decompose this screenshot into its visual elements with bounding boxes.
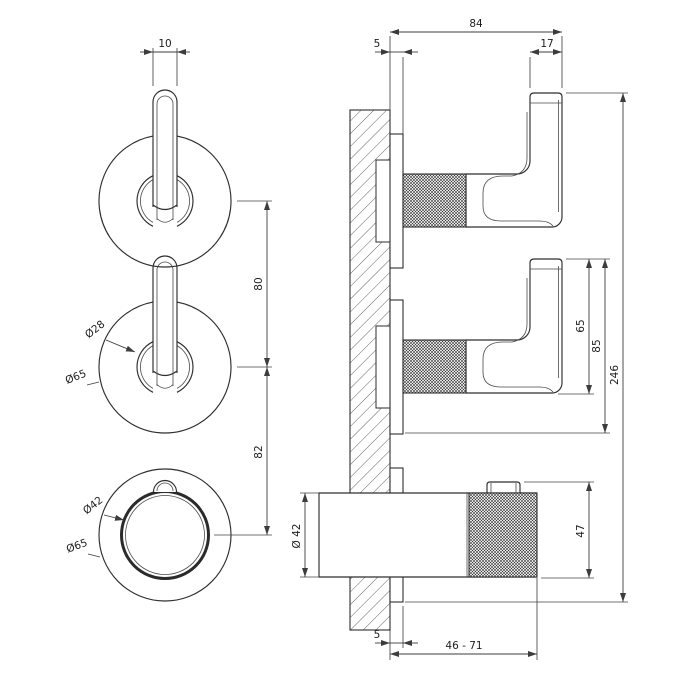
in-wall-valve-middle — [376, 326, 390, 408]
dim-text-o42-side: Ø 42 — [291, 524, 303, 549]
front-handle-middle — [99, 256, 231, 433]
dim-text-65: 65 — [575, 319, 587, 332]
side-lever-top — [403, 93, 562, 227]
dim-lever-width-front: 10 — [140, 38, 190, 86]
dim-installation-depth: 46 - 71 — [390, 578, 537, 660]
label-hub-diameter: Ø28 — [83, 318, 107, 341]
dim-lever-height: 65 — [558, 259, 610, 394]
dim-text-84: 84 — [469, 18, 483, 30]
label-knob-diameter: Ø42 — [81, 494, 105, 517]
dim-text-46-71: 46 - 71 — [445, 640, 482, 652]
in-wall-valve-top — [376, 160, 390, 242]
technical-drawing-page: 10 80 82 Ø28 Ø65 Ø42 Ø65 — [0, 0, 700, 700]
dim-text-80: 80 — [253, 277, 265, 290]
dim-text-5-top: 5 — [374, 38, 381, 50]
dim-text-10: 10 — [158, 38, 171, 50]
front-view: 10 80 82 Ø28 Ø65 Ø42 Ø65 — [64, 38, 272, 601]
mixer-technical-drawing: 10 80 82 Ø28 Ø65 Ø42 Ø65 — [0, 0, 700, 700]
dim-text-17: 17 — [540, 38, 553, 50]
rosette-middle — [390, 300, 403, 434]
rosette-top — [390, 134, 403, 268]
knob-safety-button — [487, 482, 520, 493]
label-rosette-middle: Ø65 — [64, 368, 89, 387]
dim-text-82: 82 — [253, 445, 265, 458]
dim-total-projection: 84 — [390, 18, 562, 110]
front-handle-top — [99, 90, 231, 267]
knob-knurled-grip — [469, 493, 537, 577]
side-view: 84 5 17 65 85 — [291, 18, 628, 660]
dim-body-diameter: Ø 42 — [291, 493, 319, 577]
dim-text-246: 246 — [609, 365, 621, 385]
front-knob-bottom — [99, 469, 231, 601]
thermostat-body — [319, 482, 537, 577]
label-rosette-bottom: Ø65 — [65, 537, 89, 556]
dim-text-5-bottom: 5 — [374, 629, 381, 641]
dim-text-85: 85 — [591, 339, 603, 352]
dim-text-47: 47 — [575, 524, 587, 537]
side-lever-middle — [403, 259, 562, 393]
dim-lever-bar-width: 17 — [530, 38, 562, 88]
dim-chain-spacing: 80 82 — [214, 201, 272, 535]
